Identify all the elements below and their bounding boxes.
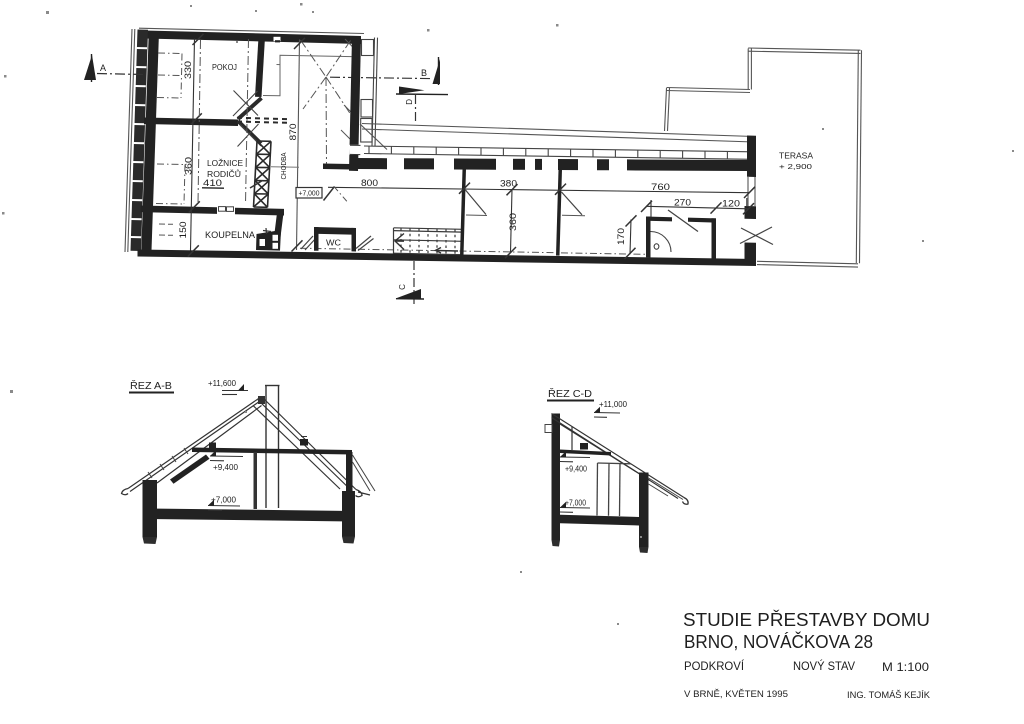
svg-text:270: 270	[674, 198, 691, 208]
svg-text:+9,400: +9,400	[213, 462, 238, 472]
svg-text:+9,400: +9,400	[565, 464, 587, 474]
svg-text:WC: WC	[326, 239, 341, 248]
svg-text:760: 760	[651, 182, 670, 192]
svg-text:870: 870	[288, 124, 298, 141]
svg-text:ING. TOMÁŠ KEJÍK: ING. TOMÁŠ KEJÍK	[847, 690, 931, 701]
svg-text:+7,000: +7,000	[211, 495, 236, 505]
svg-text:ŘEZ C-D: ŘEZ C-D	[548, 387, 592, 400]
svg-text:+7,000: +7,000	[299, 191, 320, 198]
svg-text:410: 410	[203, 178, 222, 188]
svg-text:+7,000: +7,000	[565, 498, 586, 508]
svg-text:ŘEZ A-B: ŘEZ A-B	[130, 379, 172, 392]
svg-text:LOŽNICE: LOŽNICE	[207, 158, 243, 168]
svg-text:B: B	[421, 68, 427, 78]
svg-text:KOUPELNA: KOUPELNA	[205, 230, 255, 240]
svg-text:PODKROVÍ: PODKROVÍ	[684, 658, 745, 673]
svg-text:C: C	[398, 284, 407, 290]
svg-text:150: 150	[178, 222, 188, 239]
svg-text:NOVÝ STAV: NOVÝ STAV	[793, 658, 855, 673]
svg-text:POKOJ: POKOJ	[212, 62, 237, 72]
svg-text:360: 360	[508, 213, 518, 231]
svg-text:STUDIE PŘESTAVBY DOMU: STUDIE PŘESTAVBY DOMU	[683, 610, 930, 630]
svg-text:V BRNĚ, KVĚTEN 1995: V BRNĚ, KVĚTEN 1995	[684, 689, 788, 700]
svg-text:M 1:100: M 1:100	[882, 660, 929, 674]
svg-text:170: 170	[616, 228, 626, 245]
svg-text:+ 2,900: + 2,900	[779, 162, 812, 171]
svg-text:+11,000: +11,000	[599, 399, 627, 409]
svg-text:RODIČŮ: RODIČŮ	[207, 168, 241, 179]
svg-text:D: D	[405, 99, 414, 105]
svg-text:120: 120	[722, 199, 740, 209]
svg-text:+11,600: +11,600	[208, 378, 236, 388]
svg-text:CHODBA: CHODBA	[279, 153, 288, 180]
svg-text:TERASA: TERASA	[779, 151, 813, 161]
svg-text:800: 800	[361, 178, 378, 188]
svg-text:A: A	[100, 63, 106, 73]
svg-text:BRNO, NOVÁČKOVA 28: BRNO, NOVÁČKOVA 28	[684, 631, 873, 652]
svg-text:330: 330	[183, 61, 193, 79]
